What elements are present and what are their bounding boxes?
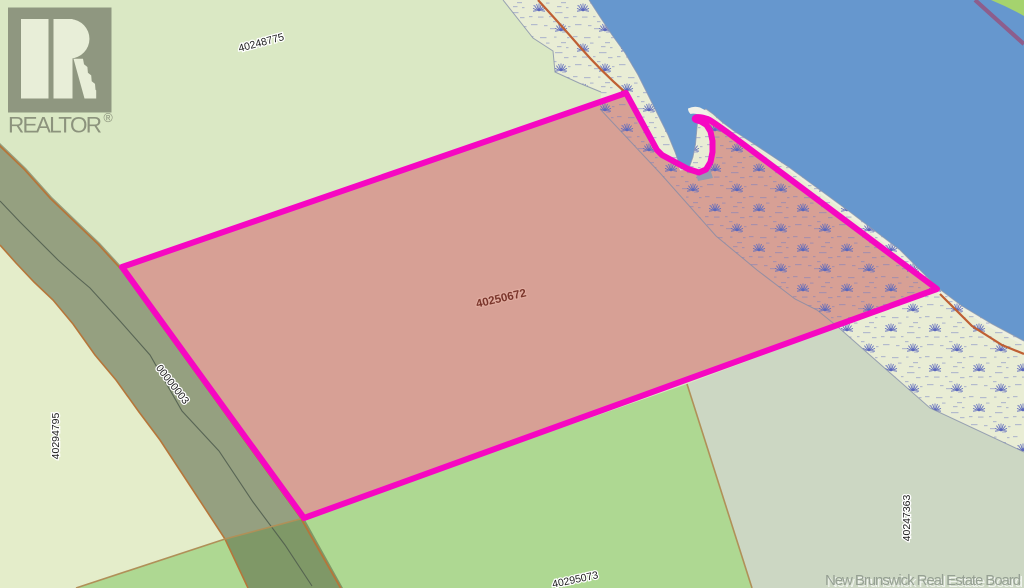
- svg-text:REALTOR: REALTOR: [8, 113, 102, 138]
- svg-text:New Brunswick Real Estate Boar: New Brunswick Real Estate Board: [825, 572, 1021, 588]
- svg-text:40294795: 40294795: [50, 412, 62, 459]
- svg-text:40247363: 40247363: [901, 494, 913, 541]
- svg-text:®: ®: [104, 111, 114, 125]
